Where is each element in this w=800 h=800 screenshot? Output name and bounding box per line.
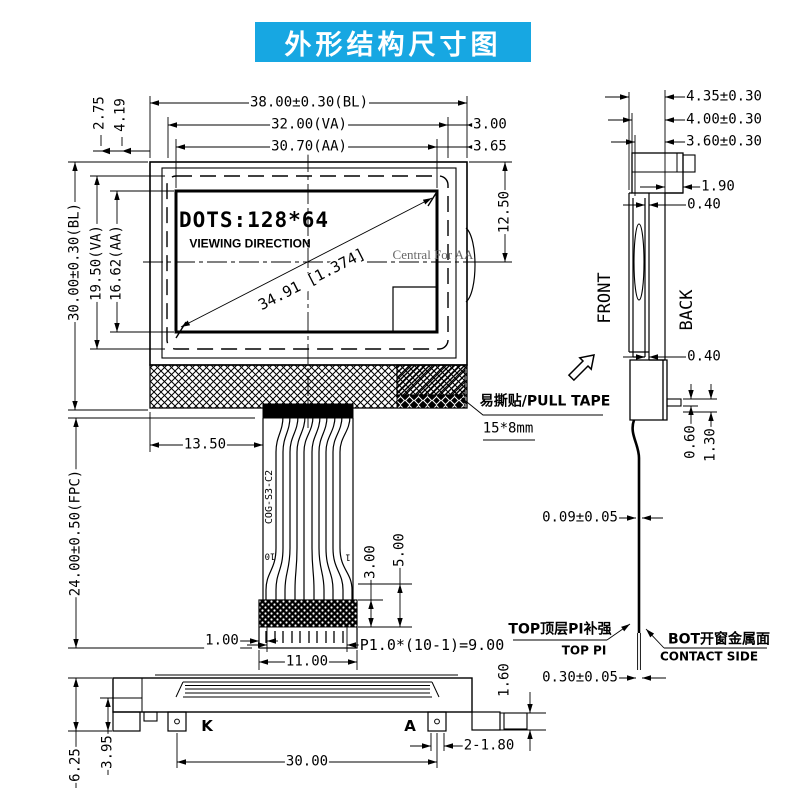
dim-pitch: P1.0*(10-1)=9.00 [359,638,506,654]
dim-center-offset: 12.50 [498,190,513,234]
side-top-tab [683,155,695,172]
dim-gap-top: 0.40 [686,198,722,213]
dim-height-bl: 30.00±0.30(BL) [68,202,83,322]
dim-edge-margin: 1.00 [204,634,240,649]
dim-margin-right-aa: 3.65 [472,140,508,155]
dim-contact-len: 3.00 [364,544,379,580]
pull-tape-label: 易撕贴/PULL TAPE [479,395,612,410]
bot-metal-cn-label: BOT开窗金属面 [667,633,771,648]
led-pin [667,399,681,406]
mounting-boss-k [168,712,186,731]
viewing-area-outline [167,176,448,349]
dim-hole: 2-1.80 [463,739,516,754]
side-fpc [633,420,639,633]
dim-fpc-offset: 13.50 [183,438,227,453]
contact-side-label: CONTACT SIDE [659,651,759,664]
pull-tape-diamond-strip [397,395,465,408]
pull-tape-area [397,365,465,395]
dim-width-aa: 30.70(AA) [270,140,348,155]
back-side-label: BACK [679,289,697,332]
dim-fpc-length: 24.00±0.50(FPC) [69,469,84,597]
top-pi-en-label: TOP PI [561,645,608,658]
central-for-aa-label: Central For AA [392,248,475,262]
side-view-linework [569,153,695,670]
side-housing [630,360,667,420]
dim-width-bl: 38.00±0.30(BL) [249,96,369,111]
display-notch [393,287,437,332]
front-side-label: FRONT [597,271,615,324]
dim-height-va: 19.50(VA) [90,224,105,302]
dimension-drawing: 外形结构尺寸图 [0,0,800,800]
dim-thickness-total: 4.35±0.30 [685,90,763,105]
dim-stiffener-len: 5.00 [393,532,408,568]
anode-label: A [403,719,417,735]
cathode-label: K [200,719,214,735]
bottom-view-dimensions [68,678,546,788]
viewing-direction-label: VIEWING DIRECTION [188,238,311,251]
dim-contact-thickness: 0.30±0.05 [541,671,619,686]
dim-fpc-thickness: 0.09±0.05 [541,511,619,526]
fpc-traces [266,416,352,600]
fpc-tab [263,404,353,418]
top-pi-cn-label: TOP顶层PI补强 [507,623,612,638]
bottom-connector-strip [176,682,439,697]
dim-margin-right-va: 3.00 [472,118,508,133]
dim-height-aa: 16.62(AA) [110,224,125,302]
dim-gap-bottom: 0.40 [686,350,722,365]
bottom-view-linework [113,675,527,731]
fpc-pin-10: 10 [264,550,277,559]
fpc-contact-pads [259,600,357,627]
dim-pin-width: 1.30 [704,427,719,463]
dim-step: 1.90 [700,180,736,195]
side-glass-stack [629,193,683,360]
dim-thickness-glass: 3.60±0.30 [685,135,763,150]
side-fpc-thin [638,633,641,670]
dim-tab-height: 1.60 [498,662,513,698]
viewing-direction-arrow [569,355,594,380]
dim-total-height: 6.25 [69,747,84,783]
dim-offset-left-2: 4.19 [114,97,129,133]
mounting-boss-a [428,712,446,731]
module-outline-inner [162,168,456,358]
dim-pin-thickness: 0.60 [684,424,699,460]
dim-offset-left-1: 2.75 [93,95,108,131]
bottom-body [113,678,472,712]
fpc-pin-1: 1 [344,551,351,560]
dim-boss-height: 3.95 [101,734,116,770]
pull-tape-size: 15*8mm [482,422,535,437]
dots-resolution-label: DOTS:128*64 [178,209,330,231]
fpc-marking: COG-S3-C2 [265,469,276,525]
lcd-cell [634,224,644,300]
dim-connector-width: 11.00 [285,655,329,670]
dim-thickness-mid: 4.00±0.30 [685,113,763,128]
dim-hole-span: 30.00 [285,755,329,770]
dim-width-va: 32.00(VA) [270,118,348,133]
